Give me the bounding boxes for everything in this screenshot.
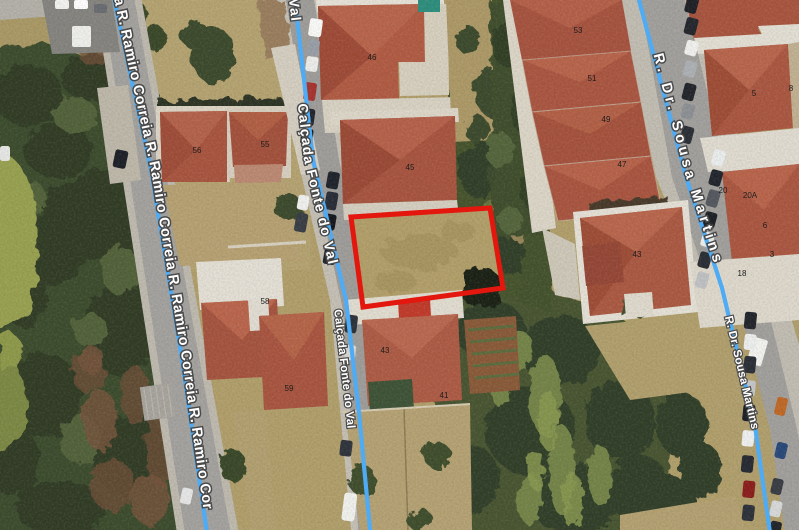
- svg-text:5: 5: [752, 89, 757, 98]
- svg-text:6: 6: [763, 221, 768, 230]
- svg-text:41: 41: [440, 391, 449, 400]
- svg-text:59: 59: [285, 384, 294, 393]
- svg-text:20A: 20A: [743, 191, 758, 200]
- svg-text:46: 46: [368, 53, 377, 62]
- svg-text:51: 51: [588, 74, 597, 83]
- svg-text:43: 43: [633, 250, 642, 259]
- svg-text:53: 53: [574, 26, 583, 35]
- svg-text:20: 20: [719, 186, 728, 195]
- svg-text:56: 56: [193, 146, 202, 155]
- svg-text:3: 3: [770, 250, 775, 259]
- svg-text:55: 55: [261, 140, 270, 149]
- svg-text:45: 45: [406, 163, 415, 172]
- svg-text:8: 8: [789, 84, 794, 93]
- svg-text:49: 49: [602, 115, 611, 124]
- svg-text:18: 18: [738, 269, 747, 278]
- svg-text:58: 58: [261, 297, 270, 306]
- svg-text:43: 43: [381, 346, 390, 355]
- svg-text:Val: Val: [286, 0, 305, 23]
- svg-text:47: 47: [618, 160, 627, 169]
